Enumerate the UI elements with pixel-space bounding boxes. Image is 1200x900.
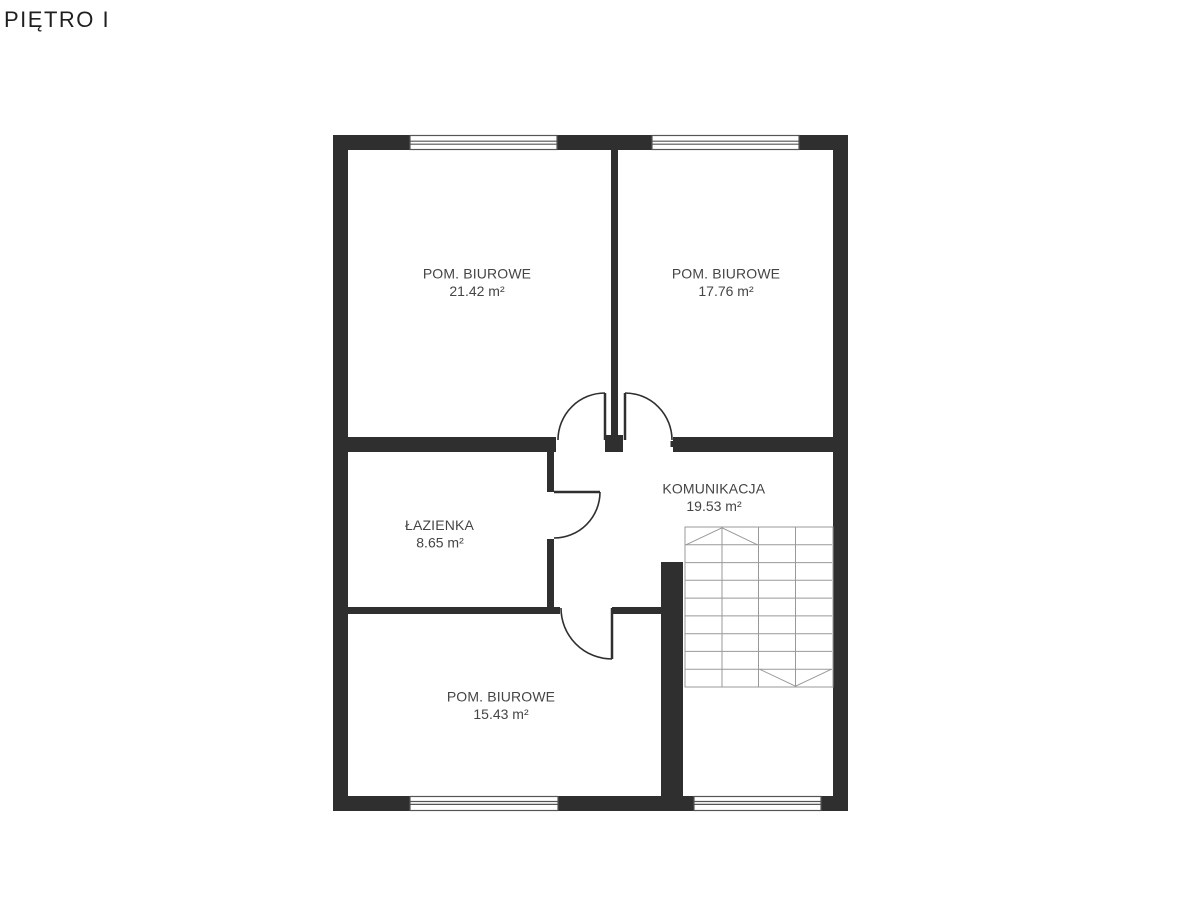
svg-text:ŁAZIENKA: ŁAZIENKA	[405, 517, 474, 533]
svg-text:PIĘTRO I: PIĘTRO I	[4, 7, 110, 32]
svg-text:17.76 m²: 17.76 m²	[698, 283, 754, 299]
svg-text:8.65 m²: 8.65 m²	[416, 535, 464, 551]
svg-text:15.43 m²: 15.43 m²	[473, 706, 529, 722]
svg-text:19.53 m²: 19.53 m²	[686, 498, 742, 514]
svg-text:POM. BIUROWE: POM. BIUROWE	[423, 266, 531, 282]
svg-text:KOMUNIKACJA: KOMUNIKACJA	[662, 481, 765, 497]
svg-text:POM. BIUROWE: POM. BIUROWE	[447, 689, 555, 705]
svg-text:POM. BIUROWE: POM. BIUROWE	[672, 266, 780, 282]
svg-text:21.42 m²: 21.42 m²	[449, 283, 505, 299]
